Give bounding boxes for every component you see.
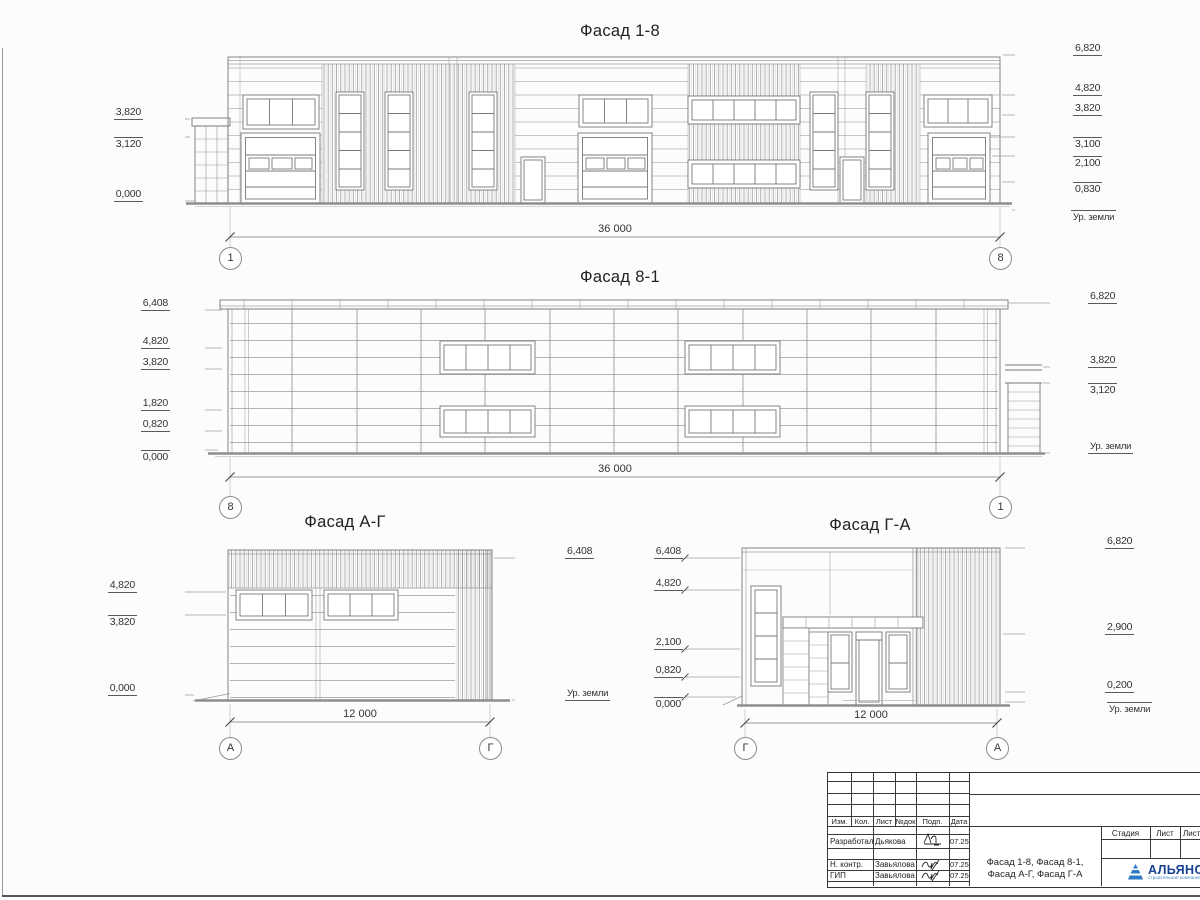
signature [920,870,946,882]
grid-bubble: Г [479,737,502,760]
ground-level-label: Ур. земли [1088,440,1133,454]
entrance-canopy [783,617,923,628]
elevation-label: 3,820 [114,106,143,120]
document-title-line2: Фасад А-Г, Фасад Г-А [988,869,1083,881]
elevation-label: 4,820 [654,577,683,591]
dimension-label: 12 000 [811,709,931,721]
elevation-label: 3,820 [141,356,170,370]
facade-8-1-drawing [205,288,1050,520]
elevation-label: 6,820 [1073,42,1102,56]
elevation-label: 3,100 [1073,137,1102,151]
elevation-label: 3,120 [1088,383,1117,397]
dimension-label: 36 000 [555,223,675,235]
tb-col-data: Дата [949,817,969,826]
facade-title: Фасад А-Г [295,513,395,532]
tall-window [751,586,781,686]
signature [920,831,946,847]
logo-name: АЛЬЯНС [1148,864,1200,876]
entrance-doors [828,632,910,705]
side-annex [1005,365,1042,453]
elevation-label: 0,200 [1105,679,1134,693]
ground-level-label: Ур. земли [1071,210,1116,224]
facade-a-g-drawing [185,543,515,762]
elevation-label: 4,820 [141,335,170,349]
tb-name: Завьялова [875,860,916,869]
tb-sheets: Листов [1180,829,1200,838]
elevation-label: 0,000 [141,450,170,464]
elevation-label: 0,820 [654,664,683,678]
tb-role: Н. контр. [830,860,873,869]
tb-sheet: Лист [1150,829,1180,838]
elevation-label: 2,100 [1073,156,1102,170]
elevation-label: 3,120 [114,137,143,151]
elevation-label: 0,820 [141,418,170,432]
elevation-label: 3,820 [1088,354,1117,368]
elevation-label: 6,820 [1105,535,1134,549]
grid-bubble: 1 [989,496,1012,519]
tb-col-izm: Изм. [828,817,851,826]
elevation-label: 6,820 [1088,290,1117,304]
grid-bubble: А [986,737,1009,760]
tb-stage: Стадия [1101,829,1150,838]
tb-col-list: Лист [873,817,895,826]
tb-name: Завьялова [875,871,916,880]
elevation-label: 6,408 [654,545,683,559]
ground-level-label: Ур. земли [565,687,610,701]
sheet-frame-left [2,48,3,897]
tb-col-kol: Кол. [851,817,873,826]
tb-col-ndok: №док [895,817,916,826]
facade-1-8-drawing [185,50,1015,275]
grid-bubble: Г [734,737,757,760]
facade-g-a-drawing [640,536,1025,762]
elevation-label: 3,820 [1073,102,1102,116]
elevation-label: 4,820 [108,579,137,593]
ground-level-label: Ур. земли [1107,702,1152,716]
wall-cladding [915,548,1000,705]
title-block: Изм. Кол. Лист №док Подп. Дата Разработа… [827,772,1200,888]
facade-title: Фасад 1-8 [520,22,720,41]
elevation-label: 3,820 [108,615,137,629]
elevation-label: 4,820 [1073,82,1102,96]
tb-date: 07.25 [950,837,969,846]
tb-role: Разработал [830,837,873,846]
drawing-sheet: Фасад 1-8 3,820 3,120 0,000 6,820 4,820 … [0,0,1200,900]
grid-bubble: 8 [989,247,1012,270]
tb-date: 07.25 [950,871,969,880]
facade-title: Фасад 8-1 [520,268,720,287]
document-title-cell: Фасад 1-8, Фасад 8-1, Фасад А-Г, Фасад Г… [969,826,1101,886]
facade-title: Фасад Г-А [820,516,920,535]
elevation-label: 6,408 [565,545,594,559]
tb-date: 07.25 [950,860,969,869]
elevation-label: 6,408 [141,297,170,311]
annex [192,118,230,203]
grid-bubble: А [219,737,242,760]
wall-cladding [228,550,492,700]
document-title-line1: Фасад 1-8, Фасад 8-1, [987,857,1084,869]
elevation-label: 0,000 [654,697,683,711]
company-logo: АЛЬЯНС строительная компания [1101,858,1200,886]
logo-subtitle: строительная компания [1148,876,1200,881]
logo-pyramid-icon [1127,863,1144,882]
elevation-label: 2,100 [654,636,683,650]
sheet-frame-bottom [2,895,1200,897]
grid-bubble: 1 [219,247,242,270]
elevation-label: 0,000 [114,188,143,202]
tb-col-podp: Подп. [916,817,949,826]
tb-role: ГИП [830,871,873,880]
elevation-label: 0,000 [108,682,137,696]
elevation-label: 2,900 [1105,621,1134,635]
grid-bubble: 8 [219,496,242,519]
elevation-label: 0,830 [1073,182,1102,196]
dimension-label: 12 000 [300,708,420,720]
elevation-label: 1,820 [141,397,170,411]
dimension-label: 36 000 [555,463,675,475]
tb-name: Дьякова [875,837,916,846]
masonry-piers [783,628,828,705]
